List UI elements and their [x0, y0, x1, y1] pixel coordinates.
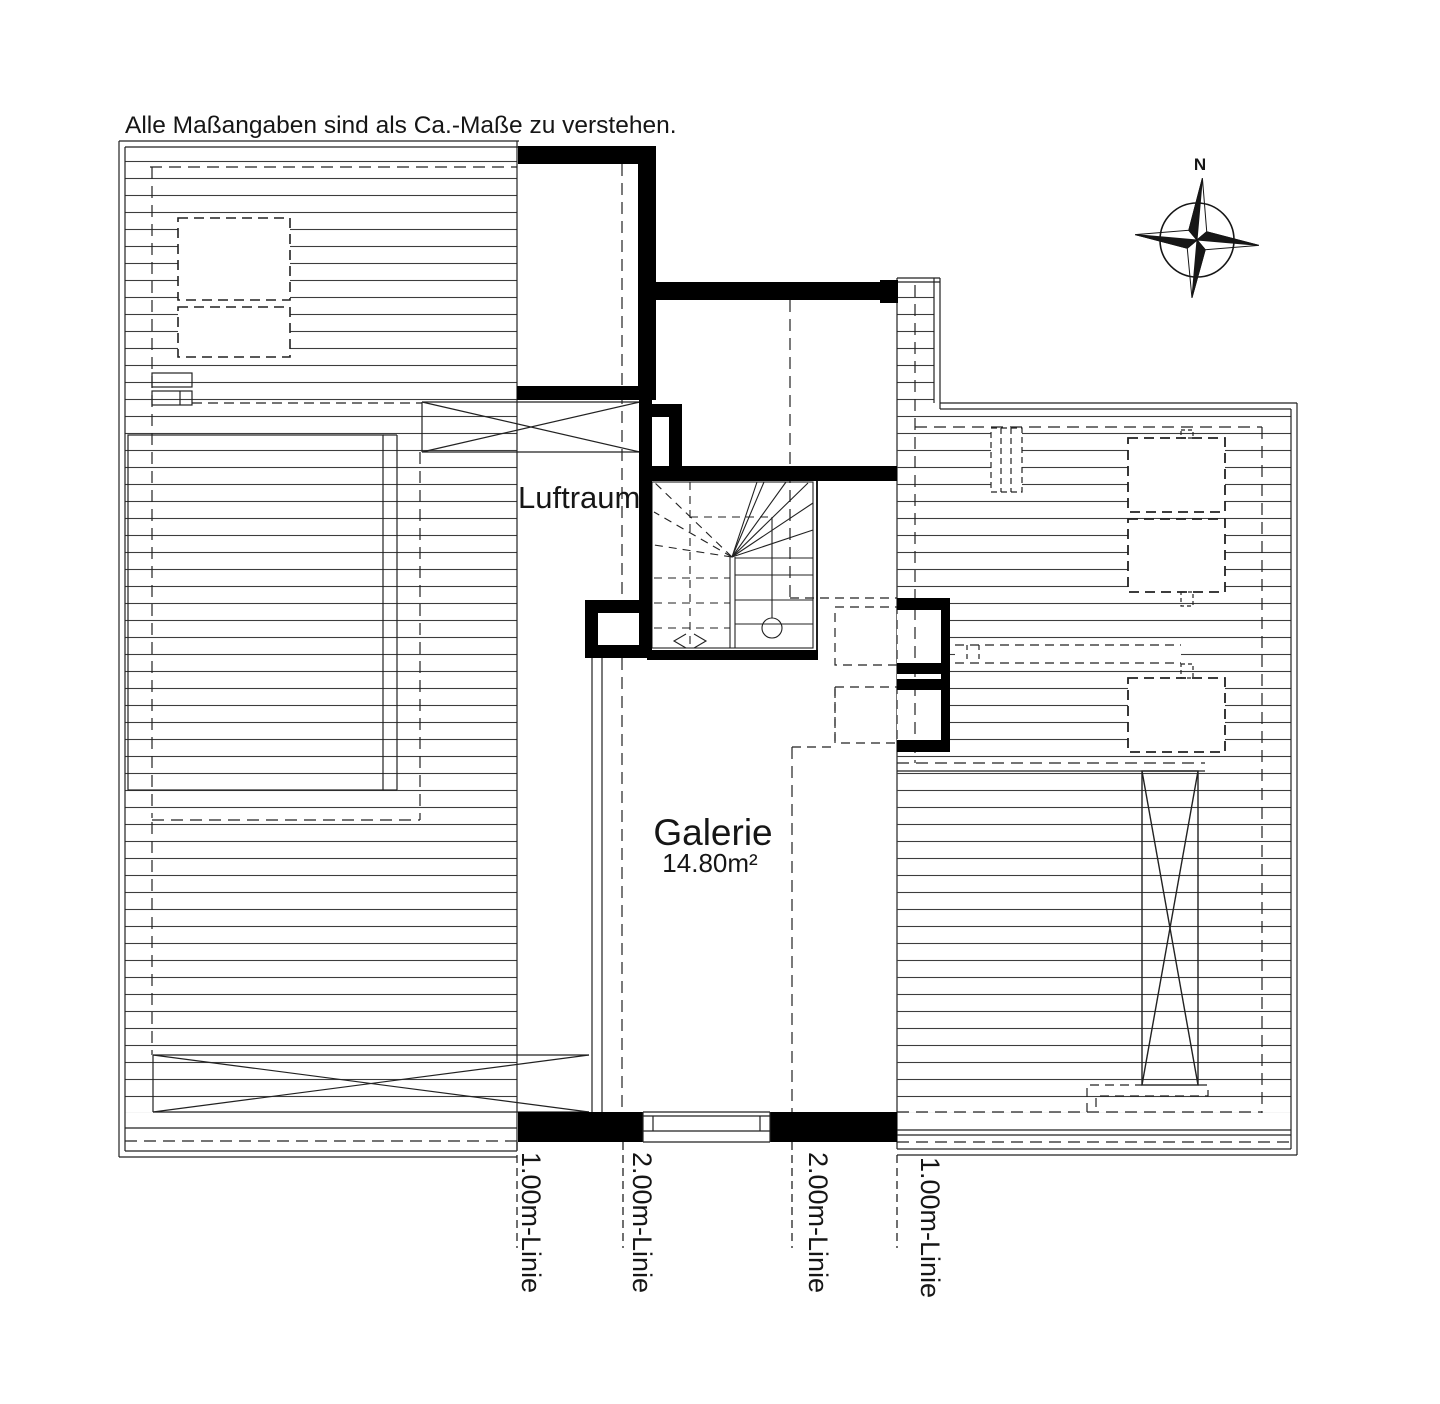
- roof-window-right-3: [1128, 678, 1225, 752]
- north-label: N: [1194, 155, 1206, 174]
- right-roof-area: [897, 278, 1297, 1155]
- galerie-label: Galerie: [653, 812, 772, 853]
- stair-post: [762, 618, 782, 638]
- dimension-label-3: 2.00m-Linie: [803, 1152, 833, 1293]
- walls: [517, 146, 950, 1142]
- galerie-area-label: 14.80m²: [662, 848, 758, 878]
- floor-plan-page: Luftraum Galerie 14.80m²: [0, 0, 1440, 1404]
- roof-window-right-2: [1128, 519, 1225, 592]
- left-roof-area: [119, 141, 640, 1157]
- luftraum-label: Luftraum: [518, 480, 640, 515]
- floor-plan-drawing: Luftraum Galerie 14.80m²: [0, 0, 1440, 1404]
- staircase: [647, 478, 818, 660]
- dimension-lines: [517, 1142, 897, 1248]
- roof-window-right-1: [1128, 438, 1225, 512]
- dashed-recess-1: [835, 607, 897, 665]
- bottom-window: [643, 1112, 770, 1142]
- dimension-label-2: 2.00m-Linie: [627, 1152, 657, 1293]
- chimney-outline: [991, 428, 1022, 492]
- right-roof-hatch: [897, 409, 1291, 1113]
- dashed-recess-2: [835, 687, 897, 743]
- stair-direction-arrow: [674, 634, 686, 648]
- roof-window-left-1: [178, 218, 290, 300]
- compass-rose: N: [1130, 155, 1264, 303]
- roof-window-left-2: [178, 307, 290, 357]
- dimension-label-1: 1.00m-Linie: [516, 1152, 546, 1293]
- disclaimer-text: Alle Maßangaben sind als Ca.-Maße zu ver…: [125, 112, 677, 139]
- dimension-label-4: 1.00m-Linie: [915, 1157, 945, 1298]
